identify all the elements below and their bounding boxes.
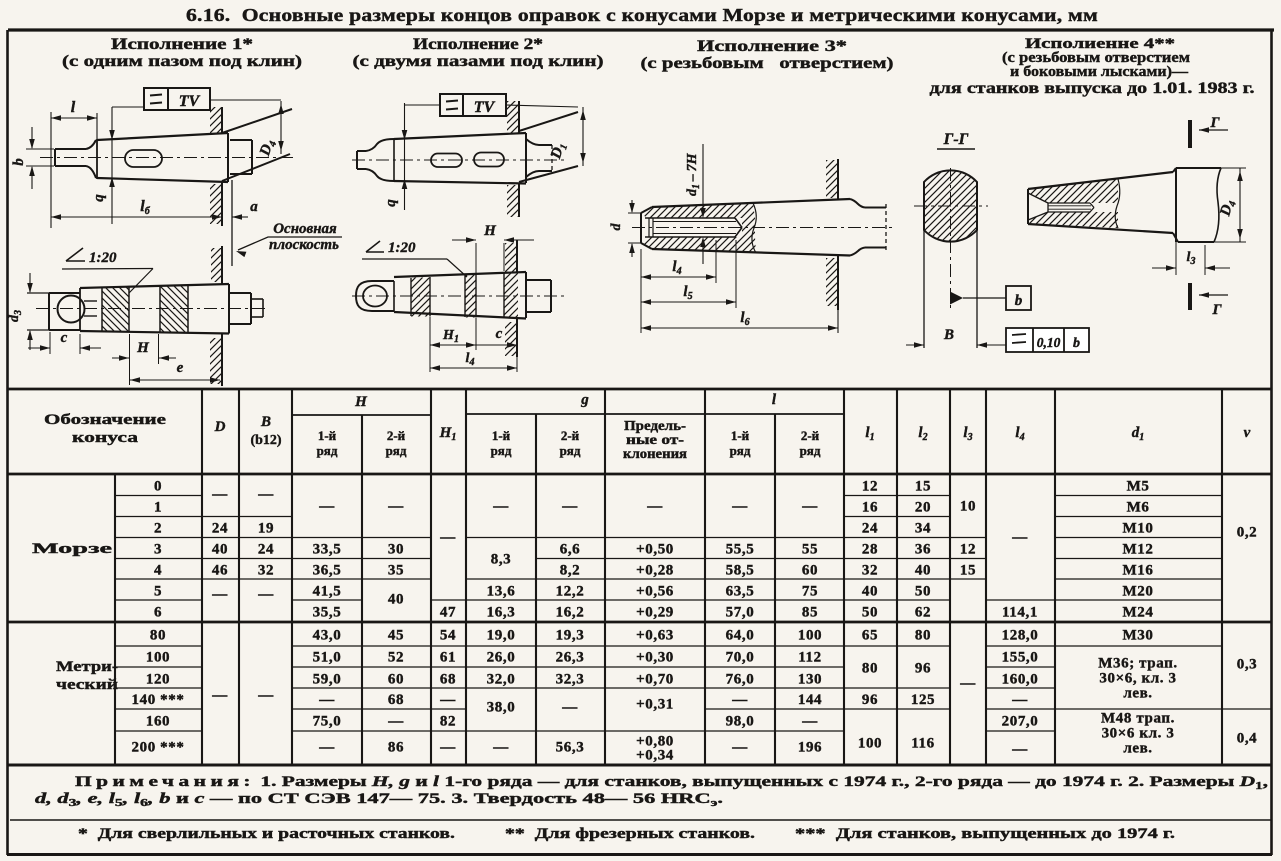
svg-text:—: — bbox=[801, 714, 818, 730]
svg-text:TV: TV bbox=[474, 99, 496, 116]
svg-text:—: — bbox=[731, 740, 748, 756]
svg-text:(с резьбовым отверстием): (с резьбовым отверстием) bbox=[641, 55, 894, 72]
svg-text:50: 50 bbox=[862, 605, 878, 621]
svg-text:0: 0 bbox=[154, 479, 162, 495]
svg-text:+0,50: +0,50 bbox=[636, 542, 674, 558]
svg-text:q: q bbox=[91, 194, 107, 202]
svg-text:d: d bbox=[609, 223, 624, 231]
svg-text:51,0: 51,0 bbox=[313, 650, 342, 666]
svg-text:М12: М12 bbox=[1123, 542, 1154, 558]
svg-text:45: 45 bbox=[388, 628, 404, 644]
svg-text:6.16. Основные размеры концов: 6.16. Основные размеры концов оправок с … bbox=[186, 5, 1098, 25]
svg-text:58,5: 58,5 bbox=[726, 563, 755, 579]
svg-text:(с двумя пазами под клин): (с двумя пазами под клин) bbox=[353, 53, 604, 70]
svg-text:128,0: 128,0 bbox=[1002, 628, 1039, 644]
svg-text:96: 96 bbox=[862, 692, 878, 708]
svg-text:—: — bbox=[561, 700, 578, 716]
svg-text:*** Для станков, выпущенных д: *** Для станков, выпущенных до 1974 г. bbox=[795, 826, 1175, 842]
svg-text:34: 34 bbox=[915, 521, 931, 537]
svg-text:(с одним пазом под клин): (с одним пазом под клин) bbox=[62, 53, 302, 70]
svg-text:—: — bbox=[1011, 530, 1028, 546]
svg-text:М24: М24 bbox=[1123, 605, 1154, 621]
svg-text:57,0: 57,0 bbox=[726, 605, 755, 621]
svg-text:М36; трап.: М36; трап. bbox=[1098, 656, 1178, 672]
svg-text:100: 100 bbox=[798, 628, 822, 644]
svg-text:68: 68 bbox=[440, 672, 456, 688]
svg-text:—: — bbox=[439, 692, 456, 708]
svg-text:М5: М5 bbox=[1127, 479, 1150, 495]
svg-text:130: 130 bbox=[798, 672, 822, 688]
svg-text:160,0: 160,0 bbox=[1002, 672, 1039, 688]
svg-text:H: H bbox=[483, 223, 497, 239]
svg-text:82: 82 bbox=[440, 714, 456, 730]
svg-text:16,3: 16,3 bbox=[487, 605, 516, 621]
svg-text:d, d3, e, l5, l6, b и с — по С: d, d3, e, l5, l6, b и с — по СТ СЭВ 147—… bbox=[35, 791, 723, 809]
svg-text:a: a bbox=[250, 199, 258, 215]
svg-text:B: B bbox=[943, 327, 954, 343]
svg-text:1-й: 1-й bbox=[731, 428, 750, 443]
svg-text:3: 3 bbox=[154, 542, 162, 558]
svg-text:40: 40 bbox=[212, 542, 228, 558]
svg-text:ряд: ряд bbox=[386, 443, 407, 458]
svg-text:40: 40 bbox=[862, 584, 878, 600]
svg-text:26,0: 26,0 bbox=[487, 650, 516, 666]
svg-text:—: — bbox=[731, 692, 748, 708]
svg-text:Основная: Основная bbox=[273, 221, 337, 237]
svg-text:+0,30: +0,30 bbox=[636, 650, 674, 666]
svg-text:b: b bbox=[1073, 336, 1080, 351]
svg-text:144: 144 bbox=[798, 692, 822, 708]
svg-text:(b12): (b12) bbox=[250, 433, 281, 448]
svg-text:—: — bbox=[257, 688, 274, 704]
svg-text:0,3: 0,3 bbox=[1237, 657, 1258, 673]
svg-text:М48 трап.: М48 трап. bbox=[1101, 711, 1175, 727]
svg-text:М10: М10 bbox=[1123, 521, 1154, 537]
svg-text:62: 62 bbox=[915, 605, 931, 621]
svg-text:196: 196 bbox=[798, 740, 822, 756]
svg-text:32,3: 32,3 bbox=[556, 672, 585, 688]
svg-text:—: — bbox=[318, 740, 335, 756]
svg-text:24: 24 bbox=[258, 542, 274, 558]
svg-text:лев.: лев. bbox=[1123, 686, 1152, 702]
svg-text:H: H bbox=[136, 340, 150, 356]
svg-text:38,0: 38,0 bbox=[487, 700, 516, 716]
svg-text:b: b bbox=[11, 158, 27, 166]
svg-text:63,5: 63,5 bbox=[726, 584, 755, 600]
svg-text:0,2: 0,2 bbox=[1237, 525, 1258, 541]
svg-text:4: 4 bbox=[154, 563, 162, 579]
svg-text:М30: М30 bbox=[1123, 628, 1154, 644]
svg-text:12: 12 bbox=[960, 542, 976, 558]
svg-text:+0,70: +0,70 bbox=[636, 672, 674, 688]
svg-text:—: — bbox=[1011, 692, 1028, 708]
svg-text:59,0: 59,0 bbox=[313, 672, 342, 688]
svg-text:64,0: 64,0 bbox=[726, 628, 755, 644]
svg-text:54: 54 bbox=[440, 628, 456, 644]
svg-text:24: 24 bbox=[862, 521, 878, 537]
svg-text:60: 60 bbox=[802, 563, 818, 579]
svg-text:ряд: ряд bbox=[800, 443, 821, 458]
svg-text:и боковыми лысками)—: и боковыми лысками)— bbox=[1010, 64, 1189, 80]
svg-text:200 ***: 200 *** bbox=[132, 740, 185, 756]
svg-text:32,0: 32,0 bbox=[487, 672, 516, 688]
svg-text:15: 15 bbox=[960, 563, 976, 579]
svg-text:52: 52 bbox=[388, 650, 404, 666]
svg-text:160: 160 bbox=[146, 714, 170, 730]
svg-text:—: — bbox=[439, 530, 456, 546]
svg-text:2-й: 2-й bbox=[801, 428, 820, 443]
svg-text:41,5: 41,5 bbox=[313, 584, 342, 600]
svg-text:30×6 кл. 3: 30×6 кл. 3 bbox=[1102, 726, 1175, 742]
svg-text:0,4: 0,4 bbox=[1237, 731, 1258, 747]
svg-text:96: 96 bbox=[915, 661, 931, 677]
svg-text:40: 40 bbox=[388, 592, 404, 608]
svg-text:—: — bbox=[1011, 742, 1028, 758]
svg-text:М20: М20 bbox=[1123, 584, 1154, 600]
svg-text:v: v bbox=[1244, 425, 1251, 441]
svg-text:47: 47 bbox=[440, 605, 456, 621]
svg-text:1-й: 1-й bbox=[318, 428, 337, 443]
svg-text:Обозначение: Обозначение bbox=[44, 412, 166, 428]
svg-text:для станков выпуска до 1.01. 1: для станков выпуска до 1.01. 1983 г. bbox=[930, 80, 1255, 97]
svg-text:D: D bbox=[214, 419, 226, 435]
svg-text:2-й: 2-й bbox=[387, 428, 406, 443]
svg-text:Г: Г bbox=[1211, 302, 1222, 318]
svg-text:116: 116 bbox=[911, 736, 934, 752]
svg-text:75: 75 bbox=[802, 584, 818, 600]
svg-text:М16: М16 bbox=[1123, 563, 1154, 579]
svg-text:30×6, кл. 3: 30×6, кл. 3 bbox=[1099, 671, 1176, 687]
svg-text:+0,31: +0,31 bbox=[636, 697, 674, 713]
svg-text:19,3: 19,3 bbox=[556, 628, 585, 644]
svg-text:100: 100 bbox=[146, 650, 170, 666]
svg-text:55: 55 bbox=[802, 542, 818, 558]
svg-text:—: — bbox=[211, 587, 228, 603]
svg-text:75,0: 75,0 bbox=[313, 714, 342, 730]
svg-text:d1 – 7H: d1 – 7H bbox=[685, 152, 702, 196]
svg-text:H: H bbox=[354, 394, 368, 410]
svg-text:19,0: 19,0 bbox=[487, 628, 516, 644]
svg-text:8,3: 8,3 bbox=[491, 552, 512, 568]
svg-text:16,2: 16,2 bbox=[556, 605, 585, 621]
svg-text:35,5: 35,5 bbox=[313, 605, 342, 621]
svg-text:—: — bbox=[211, 688, 228, 704]
svg-text:32: 32 bbox=[258, 563, 274, 579]
svg-text:28: 28 bbox=[862, 542, 878, 558]
svg-text:36: 36 bbox=[915, 542, 931, 558]
svg-text:—: — bbox=[492, 740, 509, 756]
svg-text:—: — bbox=[387, 499, 404, 515]
svg-text:36,5: 36,5 bbox=[313, 563, 342, 579]
svg-text:Морзе: Морзе bbox=[32, 541, 113, 557]
svg-text:2-й: 2-й bbox=[561, 428, 580, 443]
svg-text:33,5: 33,5 bbox=[313, 542, 342, 558]
svg-text:1:20: 1:20 bbox=[89, 250, 117, 266]
svg-text:8,2: 8,2 bbox=[560, 563, 581, 579]
svg-text:1-й: 1-й bbox=[492, 428, 511, 443]
svg-text:26,3: 26,3 bbox=[556, 650, 585, 666]
svg-text:g: g bbox=[580, 392, 589, 408]
svg-text:—: — bbox=[801, 499, 818, 515]
svg-text:6: 6 bbox=[154, 605, 162, 621]
svg-text:конуса: конуса bbox=[72, 430, 139, 446]
svg-text:10: 10 bbox=[960, 499, 976, 515]
svg-text:—: — bbox=[257, 487, 274, 503]
svg-text:61: 61 bbox=[440, 650, 456, 666]
svg-text:лев.: лев. bbox=[1123, 741, 1152, 757]
svg-text:+0,28: +0,28 bbox=[636, 563, 674, 579]
svg-text:—: — bbox=[257, 587, 274, 603]
svg-text:68: 68 bbox=[388, 692, 404, 708]
svg-text:—: — bbox=[646, 499, 663, 515]
svg-text:—: — bbox=[492, 499, 509, 515]
svg-text:—: — bbox=[387, 714, 404, 730]
svg-text:Исполнение 2*: Исполнение 2* bbox=[413, 36, 543, 53]
svg-text:q: q bbox=[383, 199, 399, 207]
svg-text:ряд: ряд bbox=[317, 443, 338, 458]
svg-text:125: 125 bbox=[911, 692, 935, 708]
svg-text:—: — bbox=[318, 499, 335, 515]
svg-text:55,5: 55,5 bbox=[726, 542, 755, 558]
svg-text:120: 120 bbox=[146, 672, 170, 688]
svg-text:43,0: 43,0 bbox=[313, 628, 342, 644]
svg-text:207,0: 207,0 bbox=[1002, 714, 1039, 730]
svg-text:e: e bbox=[177, 360, 184, 376]
svg-text:40: 40 bbox=[915, 563, 931, 579]
svg-text:6,6: 6,6 bbox=[560, 542, 581, 558]
svg-text:+0,34: +0,34 bbox=[636, 748, 674, 764]
svg-text:—: — bbox=[439, 740, 456, 756]
svg-text:1: 1 bbox=[154, 500, 162, 516]
svg-text:60: 60 bbox=[388, 672, 404, 688]
svg-text:70,0: 70,0 bbox=[726, 650, 755, 666]
svg-text:56,3: 56,3 bbox=[556, 740, 585, 756]
svg-text:l: l bbox=[71, 99, 76, 116]
svg-text:** Для фрезерных станков.: ** Для фрезерных станков. bbox=[505, 826, 755, 842]
svg-text:Исполнение 3*: Исполнение 3* bbox=[697, 38, 847, 55]
svg-text:0,10: 0,10 bbox=[1037, 335, 1061, 350]
svg-text:+0,29: +0,29 bbox=[636, 605, 674, 621]
svg-text:98,0: 98,0 bbox=[726, 714, 755, 730]
svg-text:—: — bbox=[731, 499, 748, 515]
svg-text:65: 65 bbox=[862, 628, 878, 644]
svg-text:80: 80 bbox=[862, 661, 878, 677]
svg-text:М6: М6 bbox=[1127, 500, 1150, 516]
svg-text:20: 20 bbox=[915, 500, 931, 516]
svg-text:Г: Г bbox=[1209, 115, 1220, 131]
svg-text:12,2: 12,2 bbox=[556, 584, 585, 600]
svg-text:b: b bbox=[1015, 293, 1023, 309]
svg-text:114,1: 114,1 bbox=[1002, 605, 1038, 621]
svg-text:Метри-: Метри- bbox=[56, 659, 118, 675]
svg-text:* Для сверлильных и расточных: * Для сверлильных и расточных станков. bbox=[78, 826, 455, 842]
svg-text:76,0: 76,0 bbox=[726, 672, 755, 688]
svg-text:Исполнение 1*: Исполнение 1* bbox=[111, 36, 253, 53]
svg-text:46: 46 bbox=[212, 563, 228, 579]
svg-text:155,0: 155,0 bbox=[1002, 650, 1039, 666]
svg-text:+0,63: +0,63 bbox=[636, 628, 674, 644]
svg-text:Предель-: Предель- bbox=[624, 418, 686, 433]
svg-text:плоскость: плоскость bbox=[269, 237, 339, 253]
svg-text:1:20: 1:20 bbox=[388, 240, 416, 256]
svg-text:12: 12 bbox=[862, 479, 878, 495]
svg-text:ряд: ряд bbox=[730, 443, 751, 458]
svg-text:80: 80 bbox=[150, 628, 166, 644]
svg-text:—: — bbox=[959, 676, 976, 692]
svg-text:ческий: ческий bbox=[56, 677, 118, 693]
svg-text:—: — bbox=[318, 692, 335, 708]
svg-text:30: 30 bbox=[388, 542, 404, 558]
svg-text:24: 24 bbox=[212, 521, 228, 537]
svg-text:ряд: ряд bbox=[560, 443, 581, 458]
svg-text:15: 15 bbox=[915, 479, 931, 495]
svg-text:85: 85 bbox=[802, 605, 818, 621]
svg-text:c: c bbox=[496, 326, 503, 342]
svg-text:—: — bbox=[561, 499, 578, 515]
svg-text:16: 16 bbox=[862, 500, 878, 516]
svg-text:+0,56: +0,56 bbox=[636, 584, 674, 600]
svg-text:112: 112 bbox=[798, 650, 821, 666]
svg-text:клонения: клонения bbox=[623, 446, 687, 461]
svg-text:50: 50 bbox=[915, 584, 931, 600]
svg-text:ряд: ряд bbox=[491, 443, 512, 458]
svg-text:—: — bbox=[211, 487, 228, 503]
svg-text:100: 100 bbox=[858, 736, 882, 752]
svg-text:86: 86 bbox=[388, 740, 404, 756]
svg-text:TV: TV bbox=[179, 93, 201, 110]
svg-text:19: 19 bbox=[258, 521, 274, 537]
svg-text:80: 80 bbox=[915, 628, 931, 644]
svg-text:140 ***: 140 *** bbox=[132, 692, 185, 708]
svg-text:35: 35 bbox=[388, 563, 404, 579]
svg-text:5: 5 bbox=[154, 584, 162, 600]
svg-text:c: c bbox=[61, 330, 68, 346]
svg-text:B: B bbox=[260, 414, 271, 430]
svg-text:ные от-: ные от- bbox=[626, 432, 684, 447]
svg-text:2: 2 bbox=[154, 521, 162, 537]
svg-text:32: 32 bbox=[862, 563, 878, 579]
svg-text:Г-Г: Г-Г bbox=[943, 131, 969, 148]
svg-text:13,6: 13,6 bbox=[487, 584, 516, 600]
svg-text:Примечания: 1. Размеры Н, g и: Примечания: 1. Размеры Н, g и l 1-го ряд… bbox=[75, 774, 1269, 792]
